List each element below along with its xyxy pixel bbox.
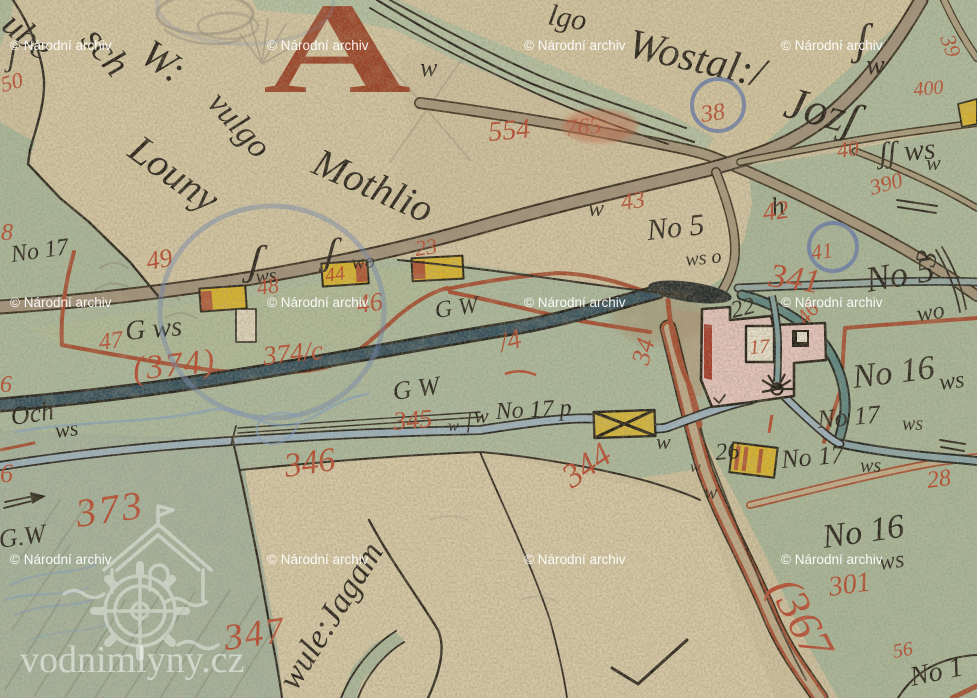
svg-text:© Národní archiv: © Národní archiv [524, 295, 626, 310]
svg-text:© Národní archiv: © Národní archiv [781, 38, 883, 53]
svg-text:© Národní archiv: © Národní archiv [524, 38, 626, 53]
svg-text:© Národní archiv: © Národní archiv [781, 295, 883, 310]
svg-text:© Národní archiv: © Národní archiv [267, 552, 369, 567]
svg-text:© Národní archiv: © Národní archiv [10, 552, 112, 567]
svg-text:© Národní archiv: © Národní archiv [10, 295, 112, 310]
svg-text:© Národní archiv: © Národní archiv [781, 552, 883, 567]
svg-text:© Národní archiv: © Národní archiv [267, 295, 369, 310]
svg-text:vodnimlyny.cz: vodnimlyny.cz [20, 639, 244, 681]
svg-text:© Národní archiv: © Národní archiv [10, 38, 112, 53]
svg-text:© Národní archiv: © Národní archiv [524, 552, 626, 567]
svg-text:© Národní archiv: © Národní archiv [267, 38, 369, 53]
